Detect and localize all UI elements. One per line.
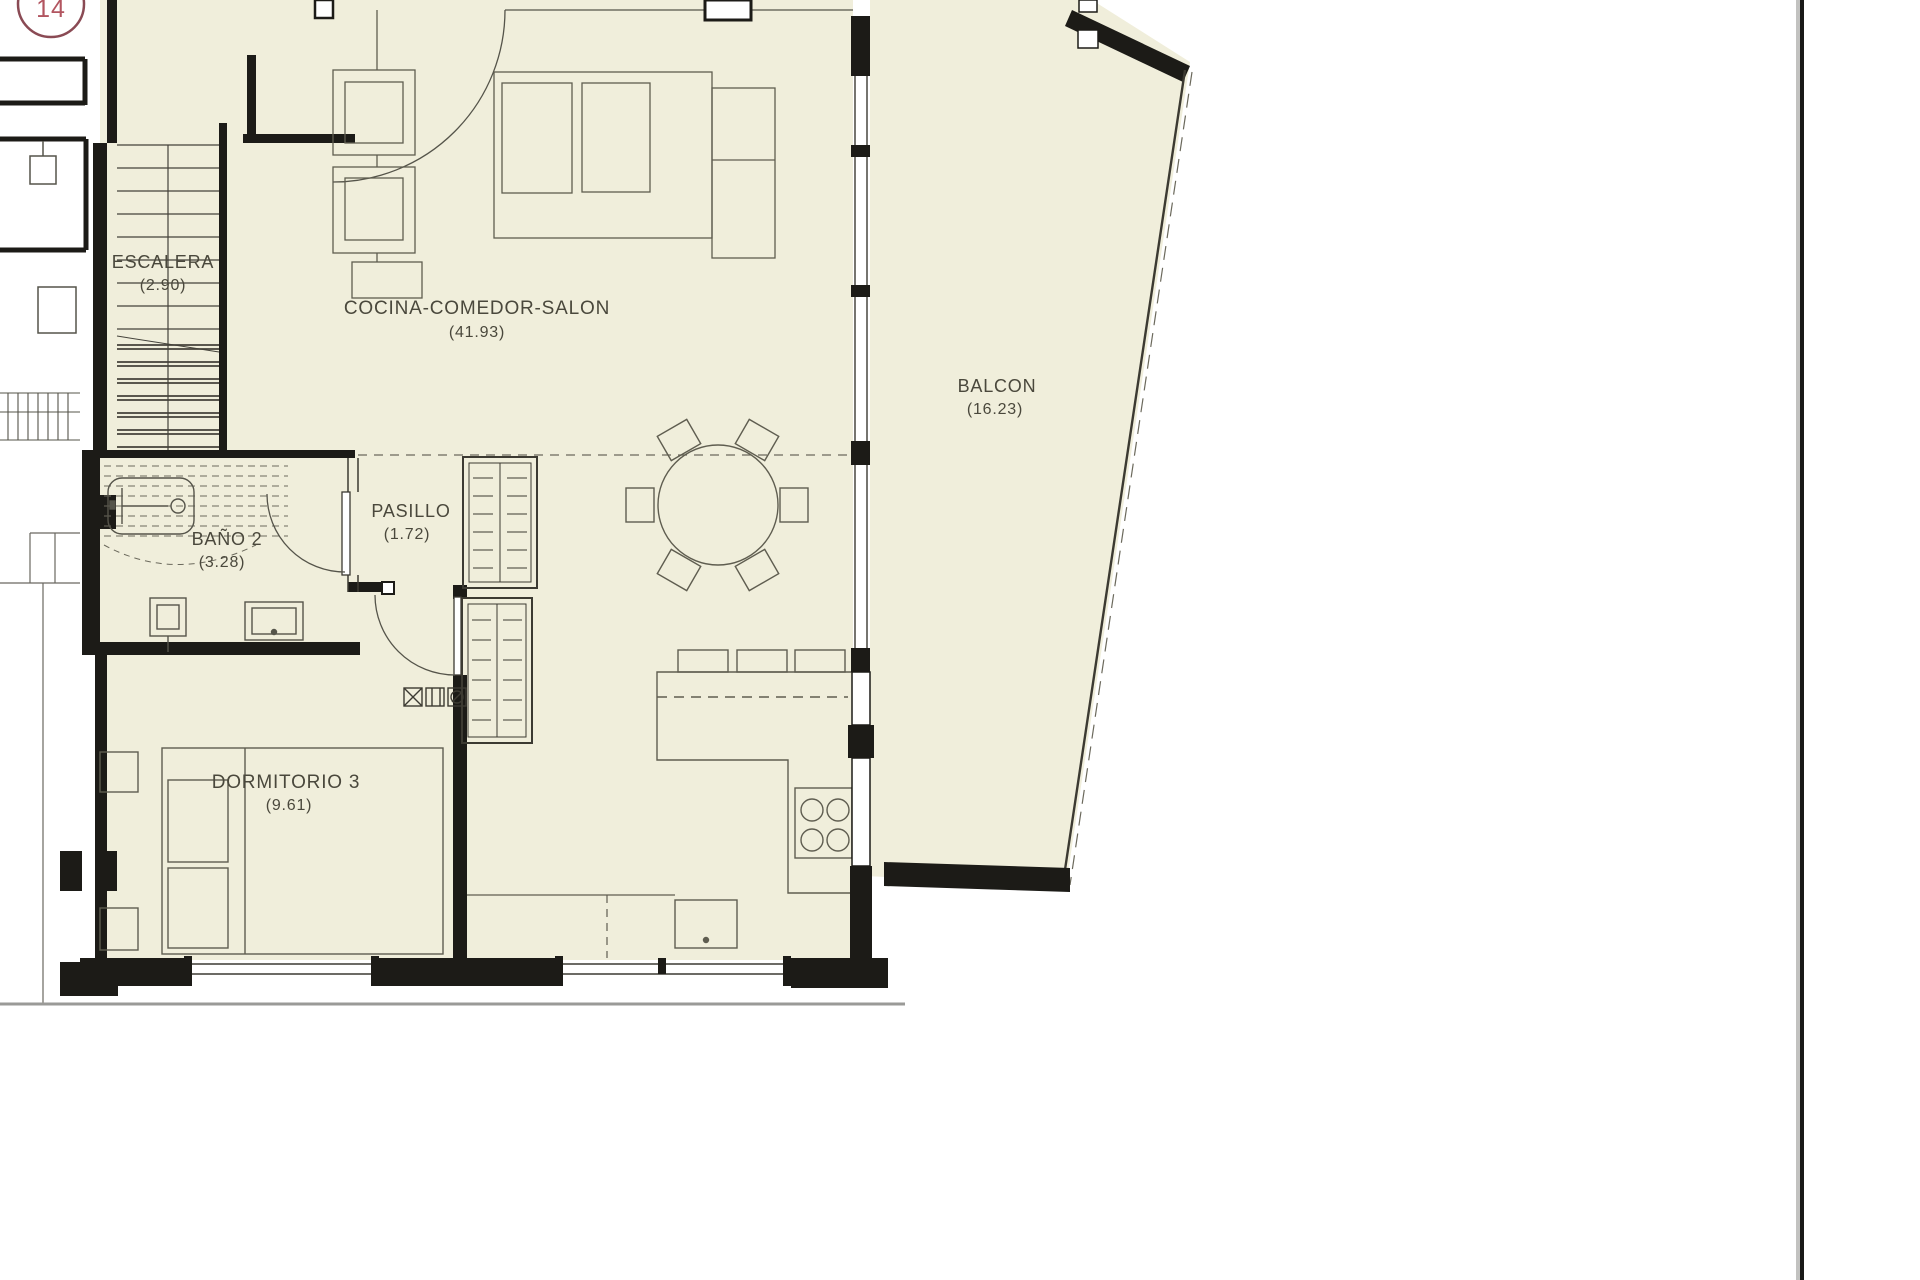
label-dormitorio3-area: (9.61) <box>266 797 313 814</box>
label-cocina-area: (41.93) <box>449 324 505 341</box>
neighbour-room-lines <box>0 533 80 1003</box>
sheet-edge-line <box>1800 0 1804 1280</box>
label-escalera-area: (2.90) <box>140 277 187 294</box>
unit-number: 14 <box>36 0 66 23</box>
balcony-floor <box>866 0 1190 886</box>
neighbour-grille <box>0 393 80 440</box>
label-escalera: ESCALERA <box>112 252 214 272</box>
unit-number-bubble: 14 <box>18 0 84 37</box>
window-icon <box>555 956 791 986</box>
neighbour-door-leaf <box>38 287 76 333</box>
label-cocina: COCINA-COMEDOR-SALON <box>344 298 610 319</box>
label-pasillo-area: (1.72) <box>384 526 431 543</box>
label-bano2-area: (3.28) <box>199 554 246 571</box>
label-bano2: BAÑO 2 <box>192 528 263 549</box>
label-pasillo: PASILLO <box>371 501 450 521</box>
neighbour-sink-icon <box>30 156 56 184</box>
floor-plan-drawing: 14 <box>0 0 1920 1280</box>
floor-fill <box>100 0 1190 960</box>
sheet-edge-shadow <box>1796 0 1800 1280</box>
balcony-door-jamb <box>705 0 751 20</box>
label-balcon-area: (16.23) <box>967 401 1023 418</box>
window-icon <box>184 956 379 986</box>
hall-door-jamb <box>382 582 394 594</box>
entry-door-jamb <box>315 0 333 18</box>
label-balcon: BALCON <box>958 376 1037 396</box>
floor-plan-sheet: 14 <box>0 0 1920 1280</box>
bottom-wall <box>80 956 888 996</box>
label-dormitorio3: DORMITORIO 3 <box>212 772 361 793</box>
